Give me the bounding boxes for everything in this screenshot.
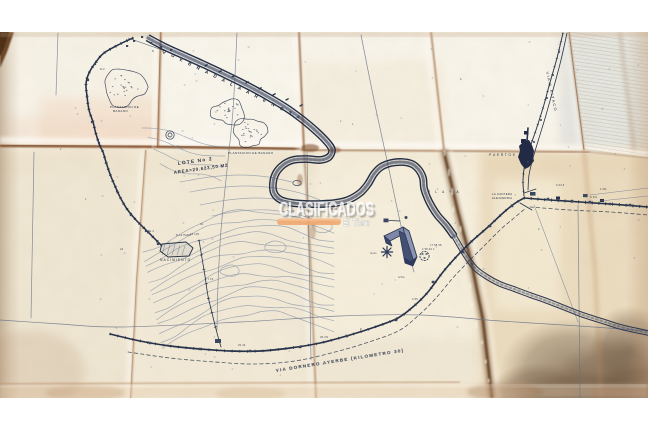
svg-text:LT 58 68: LT 58 68 <box>430 243 442 247</box>
svg-text:0 04.6: 0 04.6 <box>556 183 565 187</box>
svg-text:orillo: orillo <box>398 275 405 279</box>
svg-text:44: 44 <box>120 247 124 251</box>
svg-text:4 58-40 1: 4 58-40 1 <box>422 247 435 251</box>
svg-text:P L A Y A: P L A Y A <box>428 190 461 194</box>
svg-text:BANANO: BANANO <box>113 109 128 113</box>
svg-text:El Tiem: El Tiem <box>343 217 370 229</box>
svg-text:ALEJANDRIA: ALEJANDRIA <box>492 196 512 200</box>
svg-text:25.44: 25.44 <box>238 343 246 347</box>
svg-text:4.56: 4.56 <box>412 297 418 301</box>
svg-text:TE: TE <box>470 262 474 266</box>
svg-text:PLANTACION DE BANANO: PLANTACION DE BANANO <box>228 151 274 155</box>
svg-text:4 7 16: 4 7 16 <box>205 277 214 281</box>
svg-text:S RIL: S RIL <box>590 195 598 199</box>
svg-text:D: D <box>360 327 362 331</box>
svg-text:44: 44 <box>200 222 204 226</box>
svg-text:18 L35: 18 L35 <box>190 232 199 236</box>
svg-text:D-2: D-2 <box>100 67 105 71</box>
svg-text:PUERTOS: PUERTOS <box>489 153 516 157</box>
svg-text:36.2%: 36.2% <box>320 335 329 339</box>
svg-text:D: D <box>152 49 154 53</box>
svg-text:D-14 PARA: D-14 PARA <box>176 233 191 237</box>
svg-text:50.4: 50.4 <box>148 229 154 233</box>
svg-text:NACIMIENTO: NACIMIENTO <box>160 258 191 262</box>
svg-text:texto: texto <box>370 251 377 255</box>
svg-text:1 RIL: 1 RIL <box>600 187 608 191</box>
